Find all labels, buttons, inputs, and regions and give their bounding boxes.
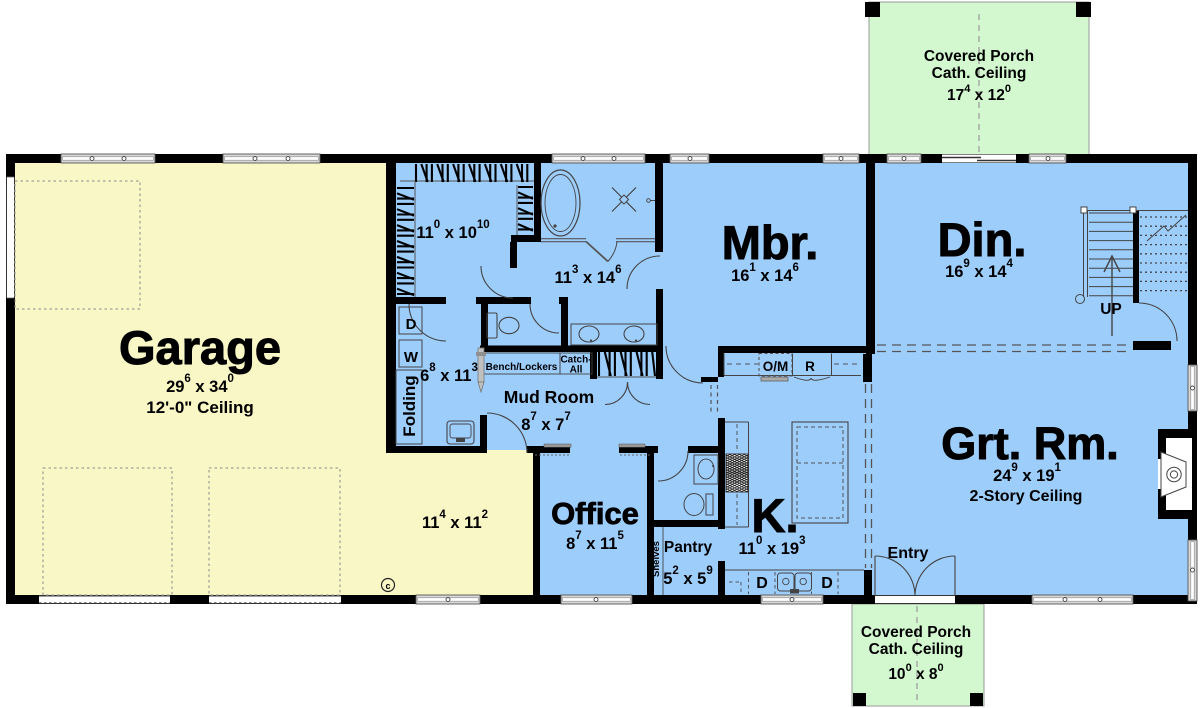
svg-text:12'-0" Ceiling: 12'-0" Ceiling <box>146 398 254 417</box>
svg-text:174 x 120: 174 x 120 <box>947 83 1011 104</box>
svg-text:O/M: O/M <box>763 359 789 374</box>
svg-text:Din.: Din. <box>938 213 1027 266</box>
svg-text:All: All <box>570 365 583 376</box>
svg-text:2-Story Ceiling: 2-Story Ceiling <box>970 488 1083 505</box>
svg-text:Bench/Lockers: Bench/Lockers <box>486 362 558 373</box>
svg-text:D: D <box>821 575 833 592</box>
svg-text:D: D <box>756 575 768 592</box>
svg-text:Cath. Ceiling: Cath. Ceiling <box>869 641 964 658</box>
svg-text:UP: UP <box>1100 301 1122 318</box>
svg-text:Mbr.: Mbr. <box>722 216 819 269</box>
svg-text:Covered Porch: Covered Porch <box>861 624 971 641</box>
svg-text:Garage: Garage <box>119 321 281 374</box>
svg-text:Shelves: Shelves <box>651 541 662 577</box>
svg-text:W: W <box>404 349 419 366</box>
svg-text:Entry: Entry <box>888 545 929 562</box>
svg-text:c: c <box>385 581 390 591</box>
svg-text:D: D <box>406 316 417 333</box>
svg-text:Folding: Folding <box>400 375 419 436</box>
svg-text:Pantry: Pantry <box>664 539 713 556</box>
svg-text:Grt. Rm.: Grt. Rm. <box>941 418 1119 469</box>
svg-text:100 x 80: 100 x 80 <box>888 662 943 683</box>
svg-text:Mud Room: Mud Room <box>504 387 594 407</box>
svg-text:R: R <box>805 359 815 374</box>
svg-text:Covered Porch: Covered Porch <box>924 48 1034 65</box>
svg-text:Cath. Ceiling: Cath. Ceiling <box>932 65 1027 82</box>
svg-text:Office: Office <box>551 496 639 531</box>
